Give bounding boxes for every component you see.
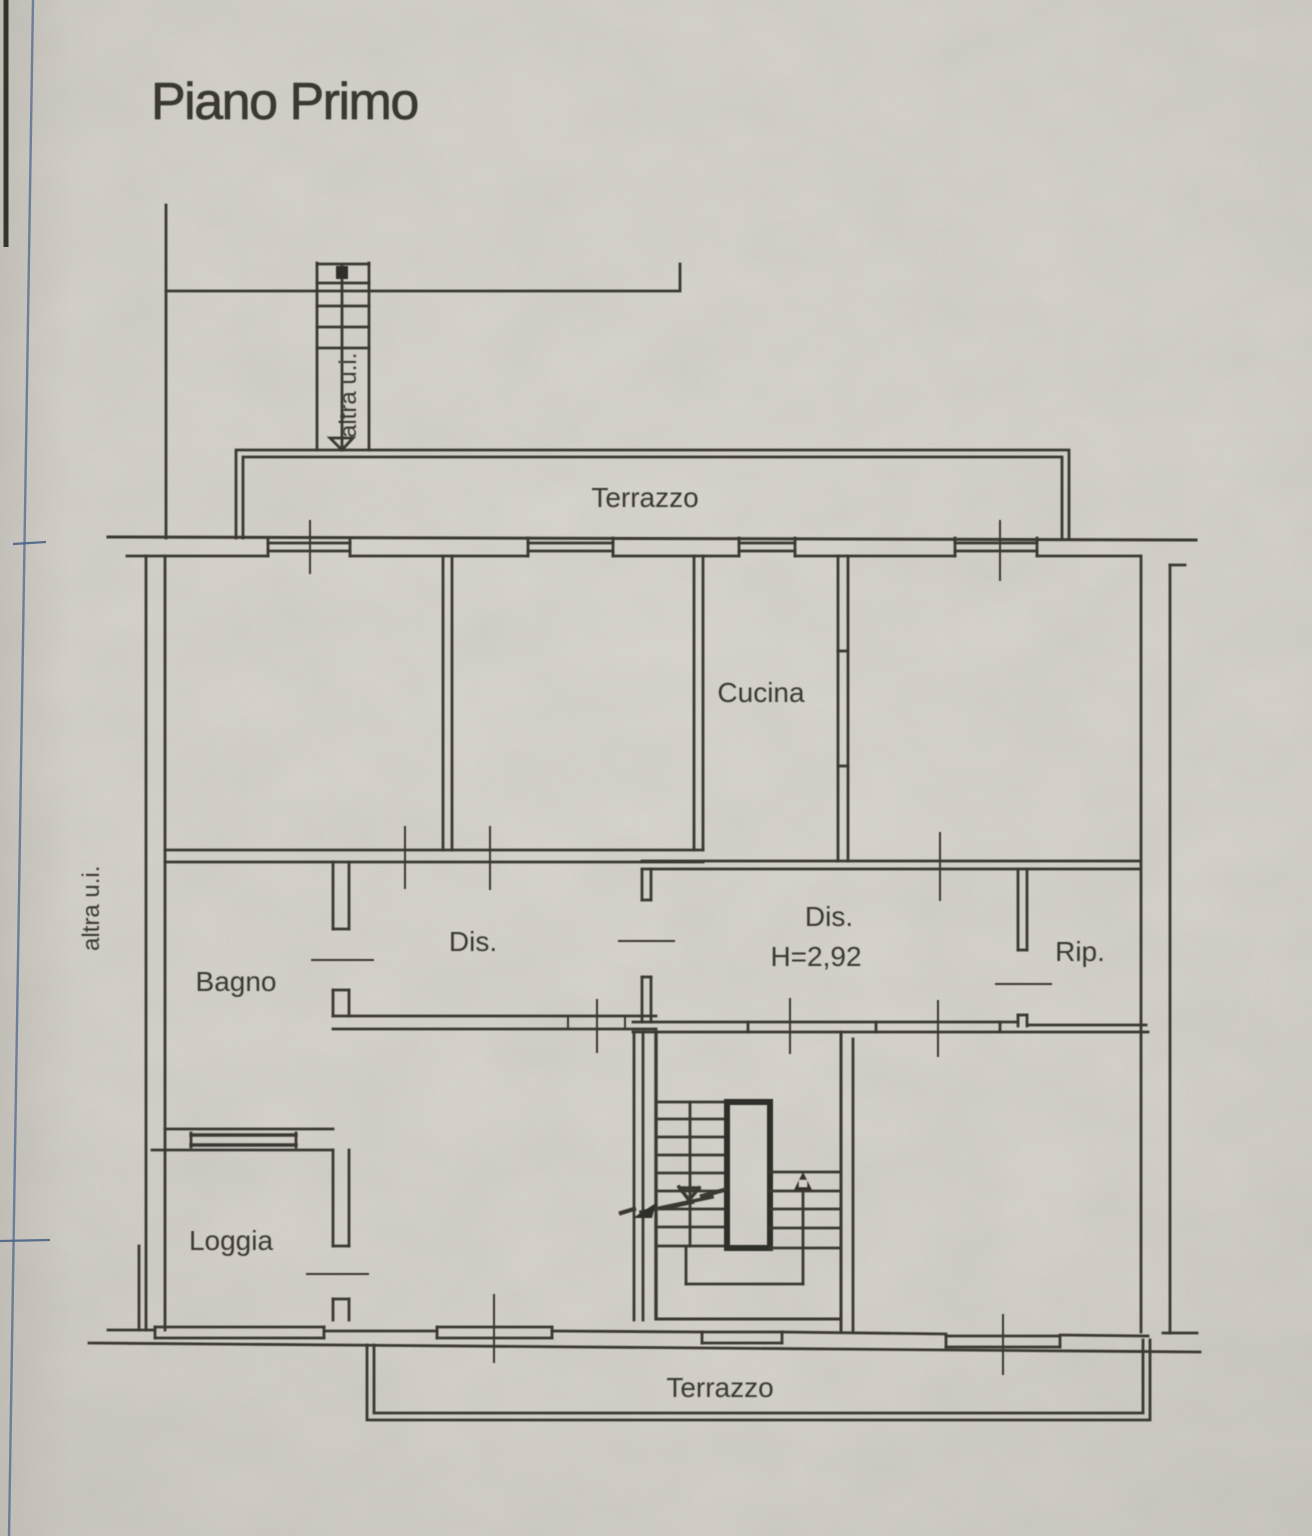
svg-text:Dis.: Dis. (449, 926, 497, 957)
svg-text:Bagno: Bagno (196, 966, 277, 997)
svg-text:Cucina: Cucina (717, 677, 805, 708)
svg-text:altra u.i.: altra u.i. (335, 353, 362, 438)
svg-text:Loggia: Loggia (189, 1225, 274, 1256)
svg-text:Terrazzo: Terrazzo (666, 1372, 773, 1403)
svg-text:Terrazzo: Terrazzo (591, 482, 698, 513)
svg-text:altra u.i.: altra u.i. (78, 866, 105, 951)
svg-text:H=2,92: H=2,92 (770, 941, 861, 972)
svg-text:Piano Primo: Piano Primo (151, 73, 418, 131)
svg-text:Rip.: Rip. (1055, 936, 1105, 967)
svg-text:Dis.: Dis. (805, 901, 853, 932)
